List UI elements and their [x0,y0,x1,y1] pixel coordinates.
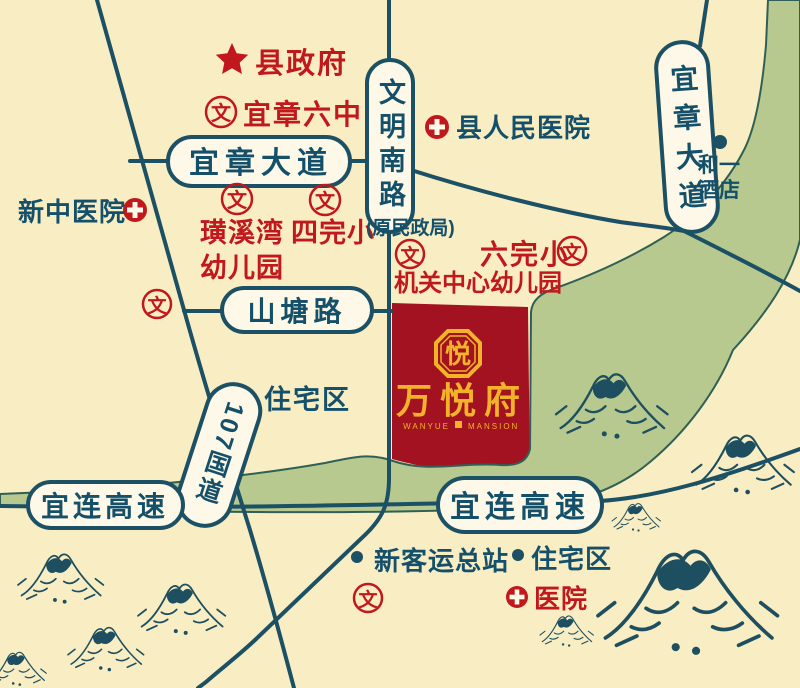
school-glyph: 文 [400,244,420,267]
project-name-en-right: MANSION [468,422,519,431]
road-label-yizhang-avenue-vertical: 宜章大道 [654,40,719,233]
road-label-shantang: 山塘路 [222,288,372,332]
poi-county-peoples-hospital: 县人民医院 [456,113,591,143]
road-label-text: 宜连高速 [41,490,169,522]
school-glyph: 文 [358,588,378,611]
poi-hospital-bottom: 医院 [534,584,588,614]
dot-marker [713,135,727,149]
hospital-cross-icon [506,586,528,608]
logo-glyph: 悦 [445,339,471,369]
school-glyph: 文 [315,189,336,213]
dot-marker [512,549,524,561]
poi-huangxiwan-line1: 璜溪湾 [200,217,284,248]
poi-yizhang-no6-school: 宜章六中 [243,98,363,130]
road-label-wenming-south: 文明南路 [367,60,413,232]
poi-new-bus-terminal: 新客运总站 [374,546,509,576]
poi-no6-primary-school: 六完小 [480,238,570,270]
school-glyph: 文 [211,101,232,125]
poi-no4-primary-school: 四完小 [291,217,375,248]
project-name-en-left: WANYUE [403,422,450,431]
poi-residential-bottom: 住宅区 [531,544,612,574]
school-glyph: 文 [227,188,248,212]
road-label-text: 宜章大道 [189,146,333,180]
school-glyph: 文 [147,294,167,317]
hospital-cross-icon [425,115,449,139]
logo-separator-icon [455,421,462,428]
map-canvas: 宜章大道 文明南路 宜章大道 山塘路 107国道 宜连高速 宜连高速 悦 万悦府… [0,0,800,688]
road-label-yilian-right: 宜连高速 [438,478,602,532]
location-map: 宜章大道 文明南路 宜章大道 山塘路 107国道 宜连高速 宜连高速 悦 万悦府… [0,0,800,688]
road-label-text: 宜连高速 [450,490,590,524]
road-label-text: 山塘路 [247,295,346,327]
hospital-cross-icon [123,198,147,222]
poi-heyi-hotel-line2: 酒店 [698,178,740,202]
poi-huangxiwan-line2: 幼儿园 [200,253,284,283]
dot-marker [351,551,363,563]
road-label-text: 文明南路 [375,77,406,214]
poi-former-civil-affairs: (原民政局) [366,216,455,239]
road-label-yizhang-avenue: 宜章大道 [168,137,350,186]
poi-residential-mid: 住宅区 [264,384,351,415]
road-label-yilian-left: 宜连高速 [28,482,183,528]
poi-county-government: 县政府 [255,46,348,80]
project-name: 万悦府 [396,380,528,421]
poi-xinzhong-hospital: 新中医院 [18,197,126,227]
poi-jiguan-kindergarten: 机关中心幼儿园 [394,269,562,297]
poi-heyi-hotel-line1: 和一 [698,154,740,177]
